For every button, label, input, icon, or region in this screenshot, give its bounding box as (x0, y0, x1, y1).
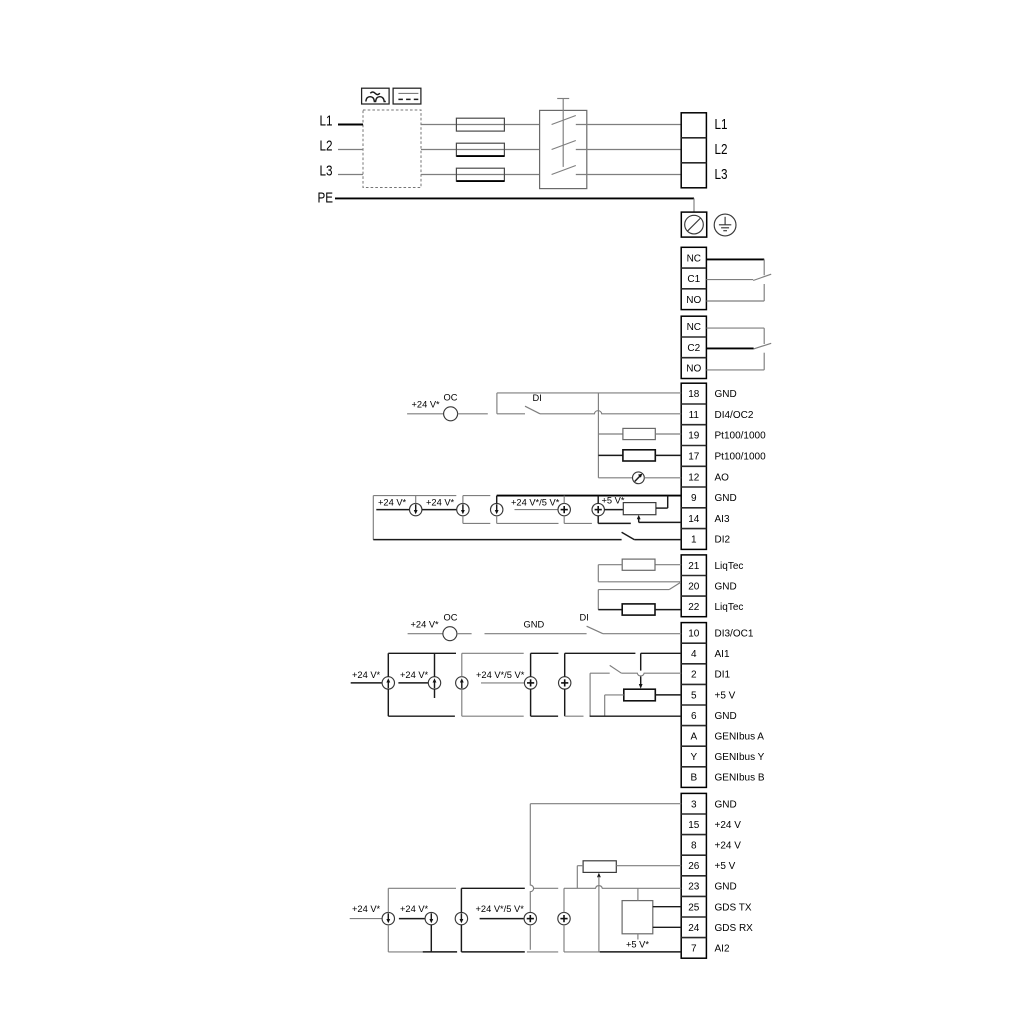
svg-text:GND: GND (715, 711, 737, 722)
svg-text:26: 26 (688, 861, 700, 872)
svg-text:GND: GND (715, 799, 737, 810)
svg-text:1: 1 (691, 535, 697, 546)
svg-text:L3: L3 (320, 162, 333, 179)
svg-text:+24 V*/5 V*: +24 V*/5 V* (511, 497, 560, 507)
svg-text:AI1: AI1 (715, 649, 730, 660)
svg-text:DI4/OC2: DI4/OC2 (715, 410, 754, 421)
svg-text:GND: GND (715, 581, 737, 592)
svg-text:L2: L2 (715, 141, 728, 158)
svg-text:L2: L2 (320, 137, 333, 154)
svg-text:NO: NO (686, 364, 701, 375)
svg-text:9: 9 (691, 493, 697, 504)
svg-text:DI3/OC1: DI3/OC1 (715, 629, 754, 640)
svg-text:22: 22 (688, 602, 700, 613)
svg-text:L3: L3 (715, 166, 728, 183)
svg-text:A: A (690, 732, 697, 743)
svg-text:+24 V: +24 V (715, 820, 742, 831)
svg-text:19: 19 (688, 431, 700, 442)
svg-text:LiqTec: LiqTec (715, 602, 744, 613)
svg-text:17: 17 (688, 452, 700, 463)
svg-text:+5 V*: +5 V* (626, 940, 649, 950)
svg-text:AI2: AI2 (715, 944, 730, 955)
svg-text:DI: DI (580, 613, 589, 623)
svg-text:DI1: DI1 (715, 670, 731, 681)
svg-text:15: 15 (688, 820, 700, 831)
svg-text:+24 V*: +24 V* (400, 670, 429, 680)
svg-text:3: 3 (691, 799, 697, 810)
svg-text:+24 V*: +24 V* (412, 399, 441, 409)
svg-text:25: 25 (688, 902, 700, 913)
svg-text:GENIbus B: GENIbus B (715, 773, 765, 784)
svg-text:14: 14 (688, 514, 700, 525)
svg-text:L1: L1 (320, 112, 333, 129)
svg-text:12: 12 (688, 472, 700, 483)
svg-text:+24 V*: +24 V* (352, 670, 381, 680)
svg-text:GENIbus A: GENIbus A (715, 732, 765, 743)
svg-text:24: 24 (688, 923, 700, 934)
svg-text:20: 20 (688, 581, 700, 592)
svg-text:DI2: DI2 (715, 535, 731, 546)
svg-text:4: 4 (691, 649, 697, 660)
svg-text:Pt100/1000: Pt100/1000 (715, 431, 767, 442)
svg-text:AO: AO (715, 472, 730, 483)
svg-text:AI3: AI3 (715, 514, 730, 525)
svg-text:NO: NO (686, 295, 701, 306)
svg-text:GDS RX: GDS RX (715, 923, 754, 934)
svg-text:C1: C1 (687, 274, 700, 285)
svg-text:Y: Y (690, 752, 697, 763)
svg-text:+5 V: +5 V (715, 690, 736, 701)
svg-text:+5 V: +5 V (715, 861, 736, 872)
svg-text:GND: GND (715, 389, 737, 400)
svg-text:GND: GND (715, 493, 737, 504)
svg-text:PE: PE (318, 189, 334, 206)
svg-text:L1: L1 (715, 116, 728, 133)
svg-text:GDS TX: GDS TX (715, 902, 752, 913)
svg-text:GENIbus Y: GENIbus Y (715, 752, 765, 763)
svg-text:Pt100/1000: Pt100/1000 (715, 452, 767, 463)
svg-text:GND: GND (524, 619, 545, 629)
svg-text:2: 2 (691, 670, 697, 681)
svg-text:8: 8 (691, 841, 697, 852)
svg-text:B: B (690, 773, 697, 784)
svg-text:NC: NC (687, 253, 701, 264)
svg-text:7: 7 (691, 944, 697, 955)
svg-text:+24 V*/5 V*: +24 V*/5 V* (476, 904, 525, 914)
svg-text:C2: C2 (687, 343, 700, 354)
svg-text:+5 V*: +5 V* (602, 496, 625, 506)
svg-text:NC: NC (687, 322, 701, 333)
svg-text:5: 5 (691, 690, 697, 701)
svg-text:GND: GND (715, 882, 737, 893)
svg-text:11: 11 (689, 410, 700, 421)
svg-text:+24 V*/5 V*: +24 V*/5 V* (476, 670, 525, 680)
svg-text:+24 V*: +24 V* (411, 619, 440, 629)
svg-text:18: 18 (688, 389, 700, 400)
svg-text:10: 10 (688, 629, 700, 640)
svg-text:+24 V*: +24 V* (426, 497, 455, 507)
svg-text:OC: OC (444, 392, 458, 402)
svg-text:+24 V: +24 V (715, 841, 742, 852)
svg-text:6: 6 (691, 711, 697, 722)
svg-text:+24 V*: +24 V* (400, 904, 429, 914)
svg-text:OC: OC (444, 613, 458, 623)
svg-text:DI: DI (533, 393, 542, 403)
svg-text:+24 V*: +24 V* (352, 904, 381, 914)
svg-text:21: 21 (688, 561, 700, 572)
svg-text:+24 V*: +24 V* (378, 497, 407, 507)
svg-text:23: 23 (688, 882, 700, 893)
svg-text:LiqTec: LiqTec (715, 561, 744, 572)
